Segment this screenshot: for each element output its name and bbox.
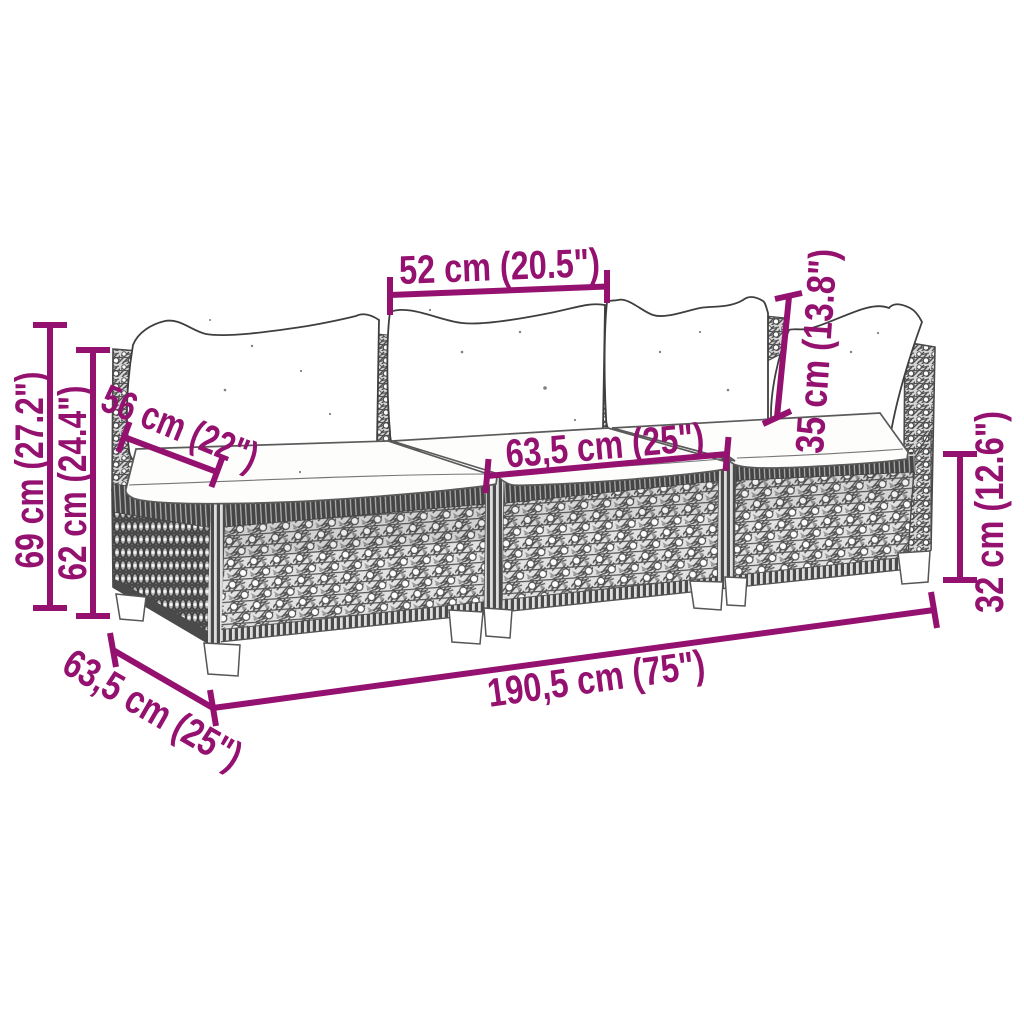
svg-text:52 cm (20.5"): 52 cm (20.5") [398, 241, 601, 293]
svg-text:32 cm (12.6"): 32 cm (12.6") [968, 411, 1012, 613]
svg-text:62 cm (24.4"): 62 cm (24.4") [51, 386, 95, 581]
svg-text:69 cm (27.2"): 69 cm (27.2") [8, 372, 52, 569]
